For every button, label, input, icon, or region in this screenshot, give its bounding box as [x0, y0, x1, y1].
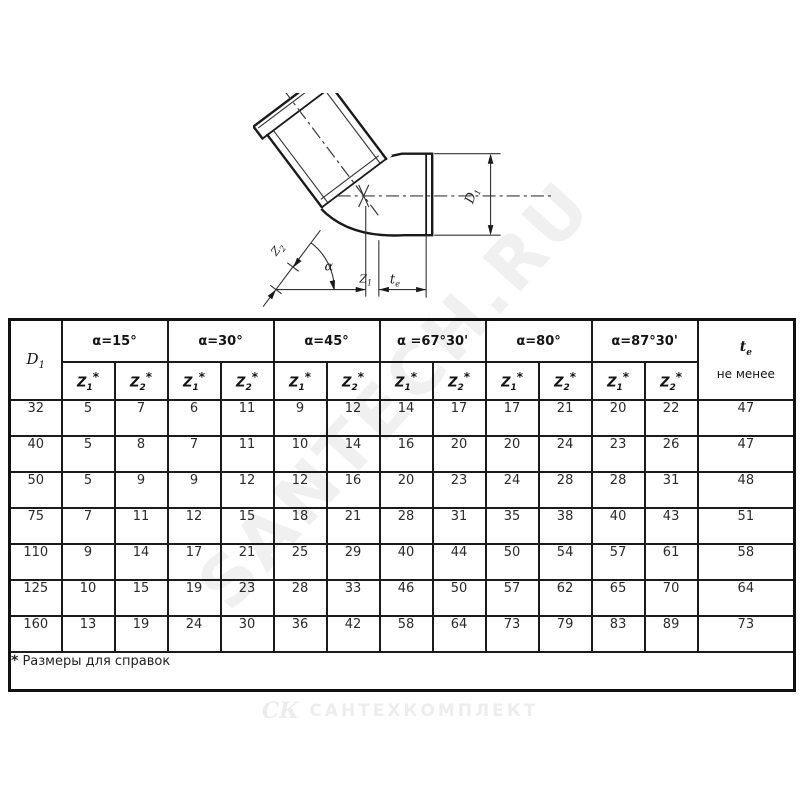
z-value: 36 [274, 616, 327, 652]
z-value: 35 [486, 508, 539, 544]
z-value: 31 [645, 472, 698, 508]
te-value: 47 [698, 400, 795, 436]
z-value: 13 [62, 616, 115, 652]
dimensions-table: D1 α=15°α=30°α=45°α =67°30'α=80°α=87°30'… [8, 318, 796, 692]
z-value: 28 [592, 472, 645, 508]
z-value: 8 [115, 436, 168, 472]
col-header-te: te не менее [698, 320, 795, 401]
table-footnote: * Размеры для справок [10, 652, 795, 691]
z-value: 44 [433, 544, 486, 580]
logo-text: САНТЕХКОМПЛЕКТ [309, 701, 538, 721]
svg-text:Z2: Z2 [268, 240, 288, 260]
z-col-header: Z2* [645, 362, 698, 400]
z-value: 46 [380, 580, 433, 616]
z-value: 19 [168, 580, 221, 616]
z1-te-dimensions: Z1 te [276, 206, 426, 298]
d1-dimension: D1 [434, 154, 500, 236]
z-value: 7 [115, 400, 168, 436]
angle-col-header: α=87°30' [592, 320, 698, 363]
z-value: 17 [168, 544, 221, 580]
z-value: 21 [327, 508, 380, 544]
z-value: 14 [115, 544, 168, 580]
z-value: 57 [592, 544, 645, 580]
z-value: 11 [221, 436, 274, 472]
z-value: 28 [274, 580, 327, 616]
z-value: 64 [433, 616, 486, 652]
angle-col-header: α =67°30' [380, 320, 486, 363]
z-value: 21 [539, 400, 592, 436]
z-value: 5 [62, 400, 115, 436]
z-value: 26 [645, 436, 698, 472]
alpha-label: α [324, 259, 333, 274]
z-value: 28 [380, 508, 433, 544]
d1-value: 40 [10, 436, 62, 472]
z-value: 43 [645, 508, 698, 544]
z2-dimension: Z2 [263, 230, 320, 307]
z-value: 14 [380, 400, 433, 436]
z-value: 20 [433, 436, 486, 472]
z-col-header: Z2* [433, 362, 486, 400]
d1-value: 32 [10, 400, 62, 436]
z-value: 11 [115, 508, 168, 544]
te-value: 64 [698, 580, 795, 616]
z-value: 9 [274, 400, 327, 436]
angle-col-header: α=30° [168, 320, 274, 363]
z-value: 61 [645, 544, 698, 580]
z-value: 42 [327, 616, 380, 652]
z-col-header: Z2* [221, 362, 274, 400]
table-row: 12510151923283346505762657064 [10, 580, 795, 616]
z-value: 24 [539, 436, 592, 472]
z-value: 17 [433, 400, 486, 436]
z-value: 65 [592, 580, 645, 616]
z-value: 21 [221, 544, 274, 580]
col-header-d1: D1 [10, 320, 62, 401]
z-value: 12 [221, 472, 274, 508]
z-value: 24 [168, 616, 221, 652]
z-value: 24 [486, 472, 539, 508]
z-value: 50 [433, 580, 486, 616]
z-value: 57 [486, 580, 539, 616]
d1-value: 125 [10, 580, 62, 616]
z-value: 54 [539, 544, 592, 580]
z-value: 50 [486, 544, 539, 580]
svg-text:te: te [390, 273, 400, 289]
z-value: 16 [380, 436, 433, 472]
z-value: 29 [327, 544, 380, 580]
z-value: 58 [380, 616, 433, 652]
z-value: 7 [168, 436, 221, 472]
z-value: 20 [380, 472, 433, 508]
z-value: 9 [115, 472, 168, 508]
te-value: 47 [698, 436, 795, 472]
z-value: 79 [539, 616, 592, 652]
z-value: 12 [274, 472, 327, 508]
z-value: 9 [62, 544, 115, 580]
z-value: 89 [645, 616, 698, 652]
z-col-header: Z2* [115, 362, 168, 400]
z-value: 17 [486, 400, 539, 436]
z-value: 40 [592, 508, 645, 544]
z-value: 23 [433, 472, 486, 508]
z-value: 11 [221, 400, 274, 436]
z-col-header: Z1* [168, 362, 221, 400]
z-value: 33 [327, 580, 380, 616]
svg-text:D1: D1 [462, 186, 483, 207]
z-value: 83 [592, 616, 645, 652]
z-value: 28 [539, 472, 592, 508]
table-row: 16013192430364258647379838973 [10, 616, 795, 652]
z-value: 19 [115, 616, 168, 652]
z-value: 6 [168, 400, 221, 436]
z-value: 15 [115, 580, 168, 616]
table-row: 325761191214171721202247 [10, 400, 795, 436]
angle-col-header: α=45° [274, 320, 380, 363]
z-value: 31 [433, 508, 486, 544]
z-value: 5 [62, 436, 115, 472]
z-value: 5 [62, 472, 115, 508]
z-value: 9 [168, 472, 221, 508]
d1-value: 75 [10, 508, 62, 544]
te-value: 58 [698, 544, 795, 580]
z-value: 14 [327, 436, 380, 472]
z-value: 23 [221, 580, 274, 616]
z-value: 22 [645, 400, 698, 436]
table-row: 757111215182128313538404351 [10, 508, 795, 544]
z-col-header: Z2* [327, 362, 380, 400]
z-col-header: Z1* [592, 362, 645, 400]
te-value: 51 [698, 508, 795, 544]
z-value: 12 [327, 400, 380, 436]
z-value: 16 [327, 472, 380, 508]
santehkomplekt-logo: СК САНТЕХКОМПЛЕКТ [0, 696, 800, 726]
z-value: 30 [221, 616, 274, 652]
z-value: 70 [645, 580, 698, 616]
te-note: не менее [699, 367, 794, 381]
d1-value: 160 [10, 616, 62, 652]
angle-col-header: α=15° [62, 320, 168, 363]
z-value: 25 [274, 544, 327, 580]
z-value: 15 [221, 508, 274, 544]
te-value: 73 [698, 616, 795, 652]
z-value: 18 [274, 508, 327, 544]
z-value: 7 [62, 508, 115, 544]
z-col-header: Z1* [486, 362, 539, 400]
angle-col-header: α=80° [486, 320, 592, 363]
sk-logo-icon: СК [262, 698, 300, 724]
z-value: 10 [274, 436, 327, 472]
z-value: 38 [539, 508, 592, 544]
alpha-angle-dimension: α [311, 243, 335, 291]
pipe-elbow-drawing: Z2 α Z1 te D1 [253, 93, 555, 315]
z-col-header: Z1* [380, 362, 433, 400]
z-value: 40 [380, 544, 433, 580]
d1-value: 110 [10, 544, 62, 580]
z-value: 20 [592, 400, 645, 436]
z-col-header: Z2* [539, 362, 592, 400]
d1-value: 50 [10, 472, 62, 508]
z-value: 73 [486, 616, 539, 652]
z-col-header: Z1* [274, 362, 327, 400]
table-row: 4058711101416202024232647 [10, 436, 795, 472]
z-value: 62 [539, 580, 592, 616]
z-col-header: Z1* [62, 362, 115, 400]
z1-label: Z [358, 273, 367, 286]
table-row: 1109141721252940445054576158 [10, 544, 795, 580]
te-value: 48 [698, 472, 795, 508]
z-value: 10 [62, 580, 115, 616]
table-row: 5059912121620232428283148 [10, 472, 795, 508]
z-value: 12 [168, 508, 221, 544]
z-value: 20 [486, 436, 539, 472]
svg-text:Z1: Z1 [358, 273, 372, 288]
z-value: 23 [592, 436, 645, 472]
